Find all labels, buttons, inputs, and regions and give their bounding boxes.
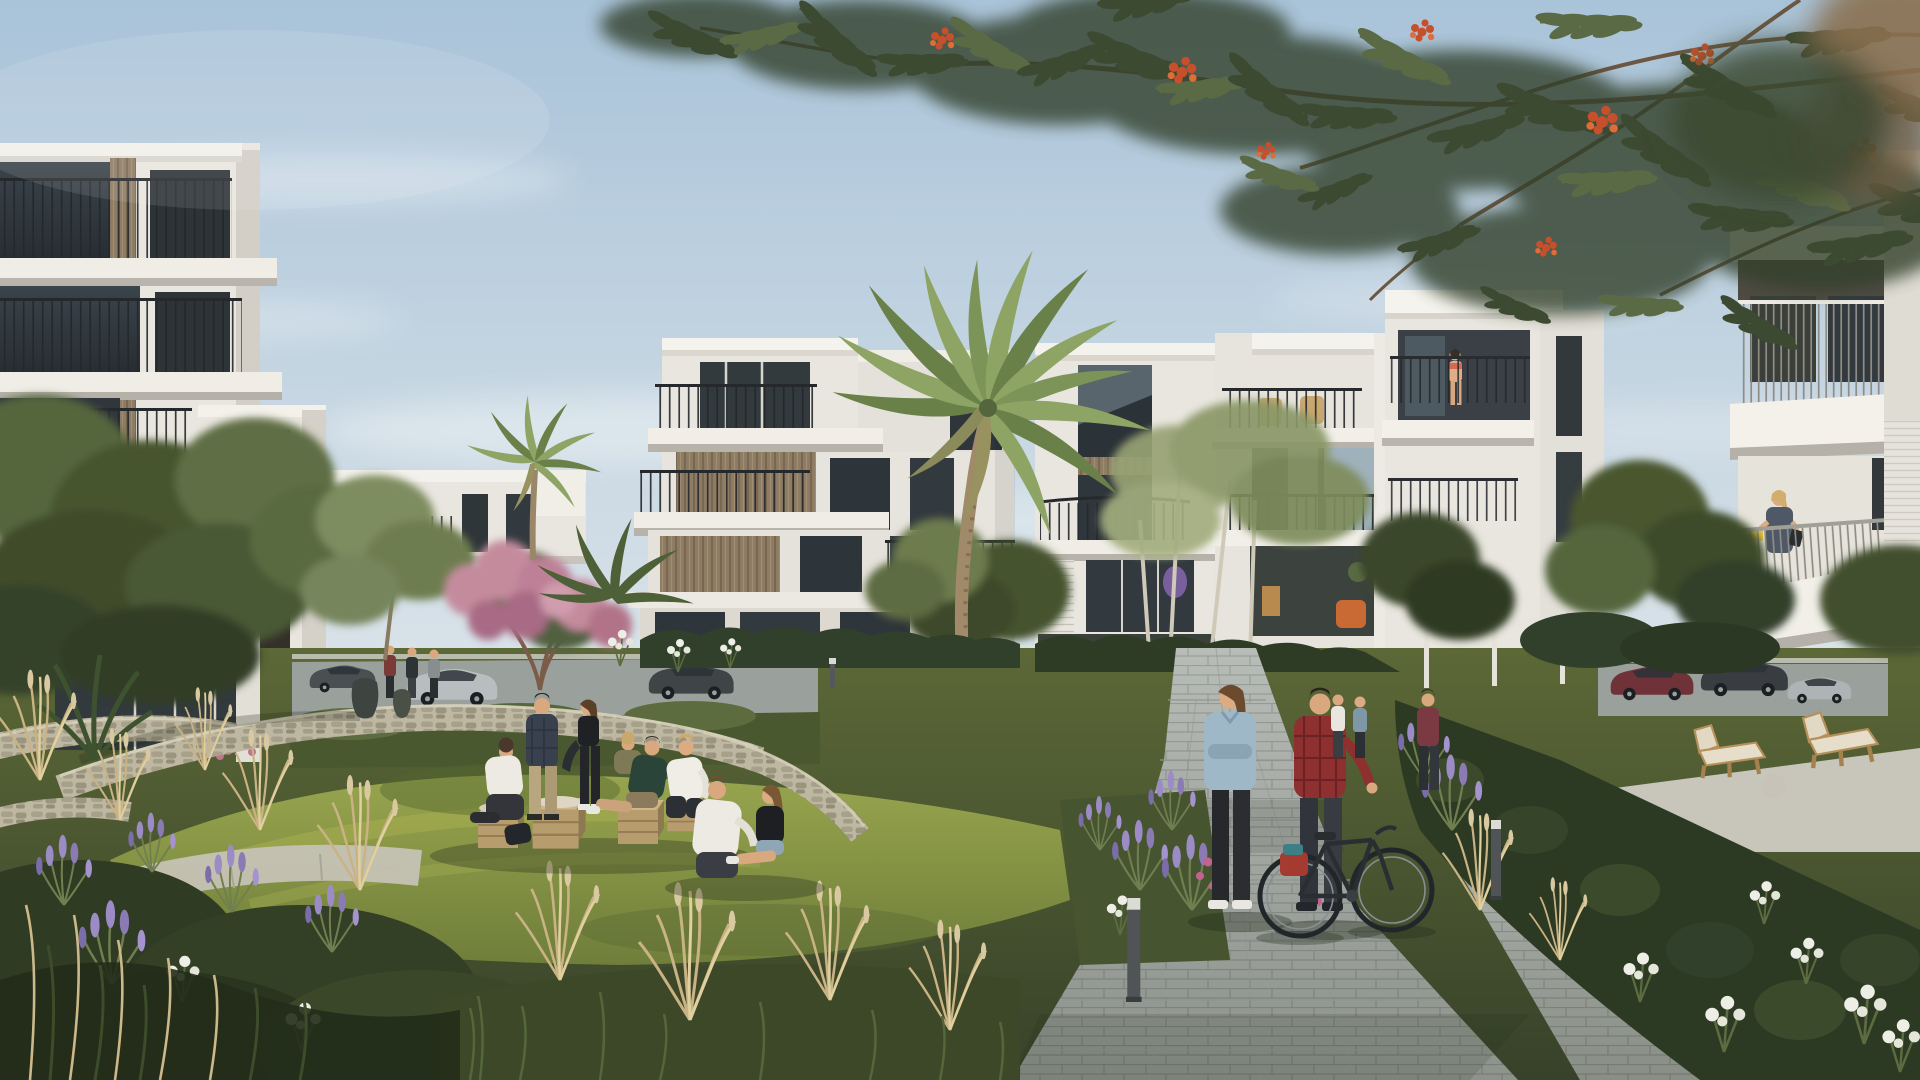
bollard-light bbox=[1490, 820, 1502, 900]
side-table bbox=[1762, 774, 1786, 798]
bollard-light bbox=[1126, 898, 1142, 1002]
background-pedestrians-left bbox=[384, 646, 440, 699]
courtyard-render bbox=[0, 0, 1920, 1080]
garden-light bbox=[829, 658, 836, 688]
right-flower-bed bbox=[1060, 771, 1230, 965]
render-image bbox=[0, 0, 1920, 1080]
